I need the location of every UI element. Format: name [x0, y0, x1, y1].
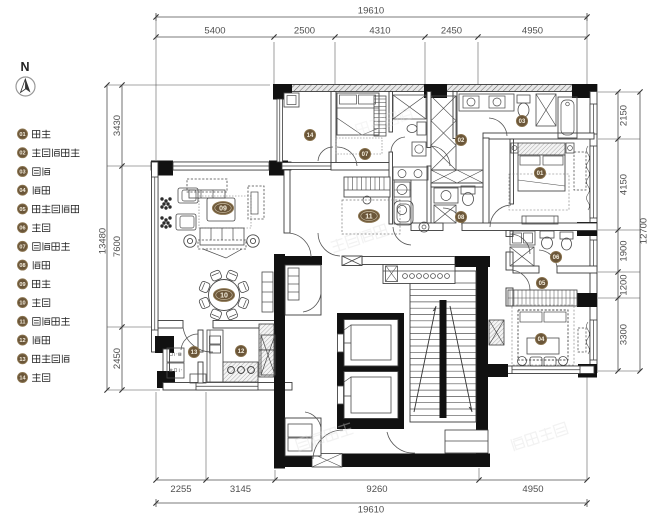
svg-text:19610: 19610 [358, 6, 384, 17]
svg-text:07: 07 [362, 152, 369, 158]
svg-text:N: N [20, 60, 29, 74]
svg-text:01: 01 [537, 171, 544, 177]
svg-text:08: 08 [19, 263, 25, 269]
svg-text:4150: 4150 [619, 174, 630, 195]
svg-text:02: 02 [19, 151, 25, 157]
svg-text:1200: 1200 [619, 274, 630, 295]
svg-text:03: 03 [19, 169, 25, 175]
svg-text:04: 04 [538, 337, 545, 343]
svg-text:11: 11 [20, 319, 26, 325]
svg-text:10: 10 [220, 293, 228, 300]
svg-text:06: 06 [19, 226, 25, 232]
svg-text:13: 13 [191, 350, 198, 356]
svg-text:12: 12 [238, 349, 245, 355]
svg-text:09: 09 [219, 206, 227, 213]
svg-text:07: 07 [19, 244, 25, 250]
svg-text:05: 05 [19, 207, 25, 213]
svg-text:2450: 2450 [112, 348, 123, 369]
svg-text:04: 04 [19, 188, 26, 194]
svg-text:02: 02 [458, 138, 465, 144]
svg-text:2500: 2500 [294, 26, 315, 37]
svg-text:11: 11 [365, 214, 373, 221]
svg-text:12700: 12700 [639, 218, 650, 244]
svg-text:4950: 4950 [522, 484, 543, 495]
svg-text:3430: 3430 [112, 115, 123, 136]
svg-text:3300: 3300 [619, 324, 630, 345]
svg-text:05: 05 [539, 281, 546, 287]
svg-text:1900: 1900 [619, 240, 630, 261]
svg-text:19610: 19610 [358, 505, 384, 516]
svg-text:3145: 3145 [230, 484, 251, 495]
svg-text:2450: 2450 [441, 26, 462, 37]
svg-text:03: 03 [519, 119, 526, 125]
svg-text:01: 01 [19, 132, 25, 138]
svg-text:10: 10 [19, 301, 25, 307]
svg-text:2255: 2255 [170, 484, 191, 495]
svg-text:13: 13 [19, 357, 25, 363]
svg-text:12: 12 [19, 338, 25, 344]
svg-text:06: 06 [553, 255, 560, 261]
svg-text:13480: 13480 [98, 228, 109, 254]
svg-text:08: 08 [458, 215, 465, 221]
svg-text:4310: 4310 [369, 26, 390, 37]
svg-text:14: 14 [19, 375, 26, 381]
svg-text:14: 14 [307, 133, 314, 139]
svg-text:7600: 7600 [112, 236, 123, 257]
svg-text:09: 09 [19, 282, 25, 288]
svg-text:4950: 4950 [522, 26, 543, 37]
svg-text:9260: 9260 [366, 484, 387, 495]
svg-text:5400: 5400 [204, 26, 225, 37]
svg-text:2150: 2150 [619, 105, 630, 126]
